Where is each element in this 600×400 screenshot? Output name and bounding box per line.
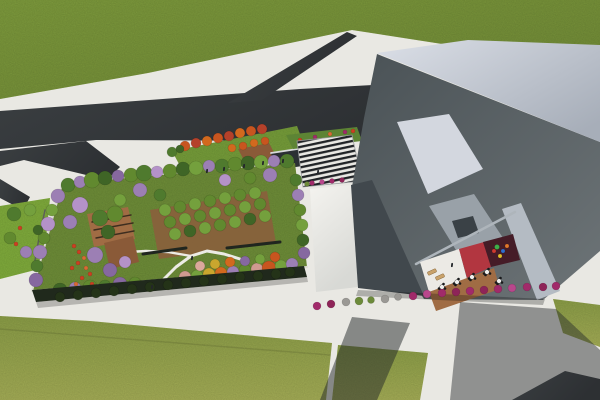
garden-trees-right-edge [294,204,306,216]
courtyard-table [497,279,502,284]
hedge-flower [328,132,332,136]
screenshot-root [0,0,600,400]
facade-shrub [55,292,65,302]
boulevard-orange-tree [228,144,236,152]
garden-trees-right-edge [298,247,310,259]
play-equipment [495,245,500,250]
minipark-tree [20,246,32,258]
walkway-shrub-row [438,289,446,297]
facade-shrub [271,269,281,279]
garden-interior-tree [133,183,147,197]
garden-trees-bottom-colorful [255,254,265,264]
garden-interior-tree [119,256,131,268]
canopy-flower [310,181,315,186]
walkway-shrub-row [494,285,502,293]
flower-drift-red [72,244,76,248]
walkway-shrub-row [368,297,375,304]
garden-trees-top-row [124,168,138,182]
canopy-flower [340,178,345,183]
orchard-grid-tree [209,207,221,219]
garden-interior-tree [72,197,88,213]
scene-svg [0,0,600,400]
garden-trees-left-edge [51,189,65,203]
boulevard-orange-tree [191,138,201,148]
orchard-grid-tree [194,210,206,222]
garden-trees-top-row [112,170,124,182]
flower-drift-red [14,242,18,246]
pergola-tree [101,225,115,239]
hedge-flower [313,135,317,139]
garden-trees-top-row [203,160,215,172]
walkway-shrub-row [452,288,460,296]
walkway-shrub-row [423,290,431,298]
walkway-shrub-row [508,284,516,292]
facade-shrub [127,284,137,294]
play-equipment [498,254,502,258]
hedge-flower [351,129,355,133]
flower-drift-red [74,282,78,286]
flower-drift-red [76,261,80,265]
garden-interior-tree [154,189,166,201]
garden-trees-top-row [254,155,268,169]
garden-trees-left-edge [31,260,43,272]
flower-drift-red [18,226,22,230]
facade-shrub [91,288,101,298]
garden-trees-top-row [84,172,100,188]
orchard-grid-tree [214,219,226,231]
boulevard-orange-tree [202,136,212,146]
minipark-tree [33,225,43,235]
boulevard-orange-tree [261,137,269,145]
facade-shrub [109,286,119,296]
boulevard-orange-tree [176,145,184,153]
orchard-grid-tree [244,213,256,225]
courtyard-table [485,270,490,275]
orchard-grid-tree [174,201,186,213]
minipark-tree [4,232,16,244]
flower-drift-red [88,272,92,276]
walkway-shrub-row [523,283,531,291]
flower-drift-red [70,266,74,270]
walkway-shrub-row [552,282,560,290]
garden-trees-left-edge [33,245,47,259]
flower-drift-red [82,256,86,260]
play-equipment [501,249,505,253]
orchard-grid-tree [179,213,191,225]
garden-trees-top-row [189,161,203,175]
walkway-shrub-row [395,294,402,301]
garden-trees-top-row [163,164,177,178]
garden-trees-bottom-colorful [210,259,220,269]
flower-drift-red [77,250,81,254]
garden-interior-tree [219,174,231,186]
garden-interior-tree [114,194,126,206]
garden-trees-top-row [136,165,152,181]
orchard-grid-tree [204,195,216,207]
canopy-flower [320,180,325,185]
boulevard-orange-tree [239,142,247,150]
facade-shrub [217,274,227,284]
orchard-grid-tree [249,187,261,199]
facade-shrub [145,282,155,292]
garden-trees-right-edge [290,174,302,186]
boulevard-orange-tree [246,126,256,136]
flower-drift-red [84,266,88,270]
garden-trees-top-row [228,157,242,171]
canopy-flower [330,179,335,184]
garden-trees-bottom-colorful [225,257,235,267]
garden-trees-left-edge [29,273,43,287]
orchard-grid-tree [184,225,196,237]
facade-shrub [235,272,245,282]
boulevard-orange-tree [167,147,177,157]
orchard-grid-tree [234,189,246,201]
facade-shrub [253,271,263,281]
garden-interior-tree [263,168,277,182]
garden-interior-tree [103,263,117,277]
garden-trees-top-row [241,156,255,170]
facade-shrub [181,278,191,288]
garden-trees-top-row [215,159,229,173]
walkway-shrub-row [466,287,474,295]
boulevard-orange-tree [250,139,258,147]
canopy-flower [305,182,310,187]
minipark-tree [7,207,21,221]
orchard-grid-tree [254,198,266,210]
boulevard-orange-tree [257,124,267,134]
boulevard-orange-tree [235,128,245,138]
garden-trees-top-row [98,171,112,185]
minipark-tree [24,204,36,216]
flower-drift-red [80,276,84,280]
orchard-grid-tree [164,216,176,228]
facade-shrub [285,267,295,277]
orchard-grid-tree [224,204,236,216]
walkway-shrub-row [480,286,488,294]
facade-shrub [199,276,209,286]
orchard-grid-tree [159,204,171,216]
garden-trees-top-row [176,162,190,176]
boulevard-orange-tree [213,133,223,143]
orchard-grid-tree [189,198,201,210]
garden-interior-tree [244,172,256,184]
facade-shrub [163,280,173,290]
facade-shrub [73,290,83,300]
walkway-shrub-row [539,283,547,291]
garden-interior-tree [63,215,77,229]
scene-layers [0,0,600,400]
courtyard-table [440,285,445,290]
garden-trees-bottom-colorful [195,261,205,271]
walkway-shrub-row [342,298,350,306]
walkway-shrub-row [327,300,335,308]
orchard-grid-tree [229,216,241,228]
garden-trees-bottom-colorful [240,256,250,266]
orchard-grid-tree [169,228,181,240]
hedge-flower [343,130,347,134]
garden-trees-left-edge [46,204,58,216]
garden-trees-top-row [61,178,75,192]
garden-trees-bottom-colorful [270,252,280,262]
entry-canopy-striped [297,135,362,187]
orchard-grid-tree [239,201,251,213]
play-equipment [505,244,509,248]
garden-trees-right-edge [292,189,304,201]
walkway-shrub-row [355,297,363,305]
garden-trees-top-row [268,155,280,167]
courtyard-table [470,275,475,280]
walkway-shrub-row [381,295,389,303]
lower-west-white-wall [310,185,358,292]
garden-trees-top-row [151,166,163,178]
orchard-grid-tree [259,210,271,222]
garden-trees-right-edge [296,219,308,231]
play-equipment [492,249,496,253]
pergola-tree [107,206,123,222]
garden-interior-tree [87,247,103,263]
pergola-tree [92,210,108,226]
courtyard-table [455,280,460,285]
garden-trees-right-edge [297,234,309,246]
walkway-shrub-row [313,302,321,310]
orchard-grid-tree [199,222,211,234]
walkway-shrub-row [409,292,417,300]
boulevard-orange-tree [224,131,234,141]
orchard-grid-tree [219,192,231,204]
